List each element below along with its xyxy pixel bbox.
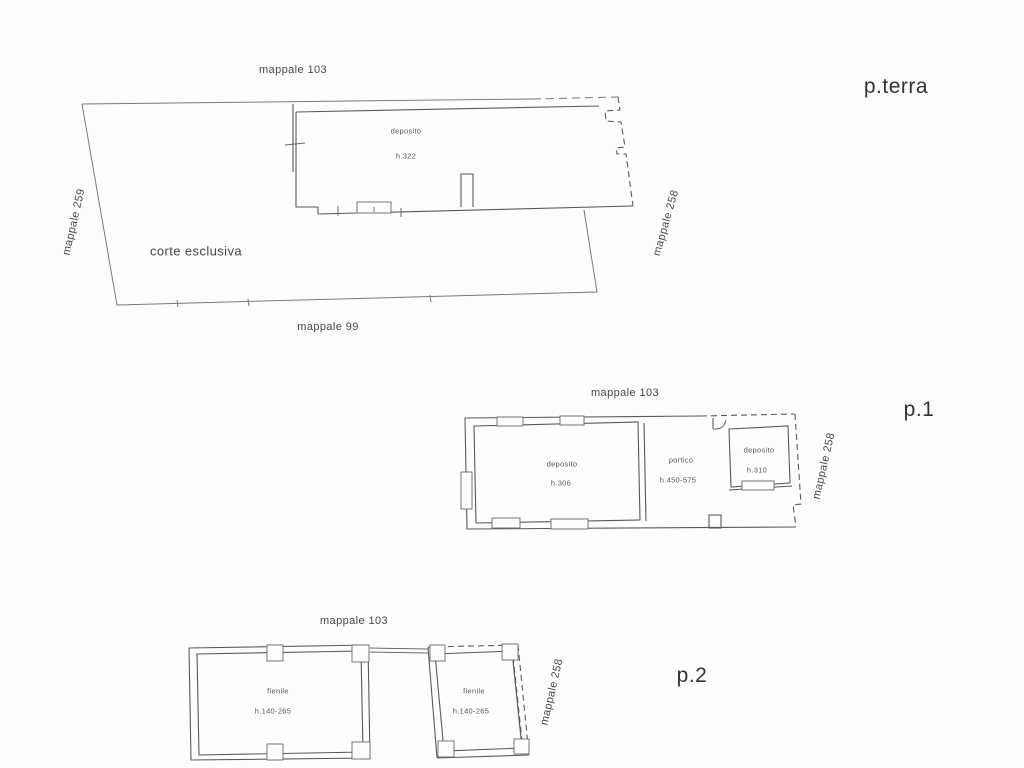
p1-window-openings (461, 416, 588, 529)
p2-connector (370, 648, 428, 653)
p1-mappale-103-label: mappale 103 (591, 387, 659, 399)
p2-mappale-103-label: mappale 103 (320, 615, 388, 627)
p2-left-building (189, 645, 370, 760)
p2-room-fienile1-height: h.140-265 (255, 707, 291, 716)
p1-room-deposito-height: h.306 (551, 479, 571, 488)
pterra-room-deposito-height: h.322 (396, 152, 416, 161)
pterra-courtyard-label: corte esclusiva (150, 244, 242, 259)
pterra-mappale-103-label: mappale 103 (259, 64, 327, 76)
p1-room-portico-name: portico (669, 456, 694, 465)
pterra-building-deposito (285, 97, 633, 217)
p1-room-portico-height: h.450-575 (660, 476, 696, 485)
p2-room-fienile1-name: fienile (267, 687, 289, 696)
p2-room-fienile2-height: h.140-265 (453, 707, 489, 716)
floorplan-linework (0, 0, 1024, 768)
p1-room-deposito-walls (474, 422, 646, 523)
cadastral-floorplan-sheet: mappale 103 p.terra mappale 259 mappale … (0, 0, 1024, 768)
pterra-floor-label: p.terra (864, 75, 928, 99)
p1-portico-pillar (709, 515, 721, 528)
p2-right-building (428, 644, 529, 758)
p1-room-deposito2-height: h.310 (747, 466, 767, 475)
pterra-parcel-outline (82, 97, 618, 307)
p1-room-deposito-name: deposito (547, 460, 578, 469)
pterra-room-deposito-name: deposito (391, 127, 422, 136)
pterra-mappale-99-label: mappale 99 (297, 321, 359, 333)
p2-room-fienile2-name: fienile (463, 687, 485, 696)
p2-floor-label: p.2 (677, 664, 708, 688)
p1-floor-label: p.1 (904, 398, 935, 422)
p1-room-deposito2-name: deposito (744, 446, 775, 455)
